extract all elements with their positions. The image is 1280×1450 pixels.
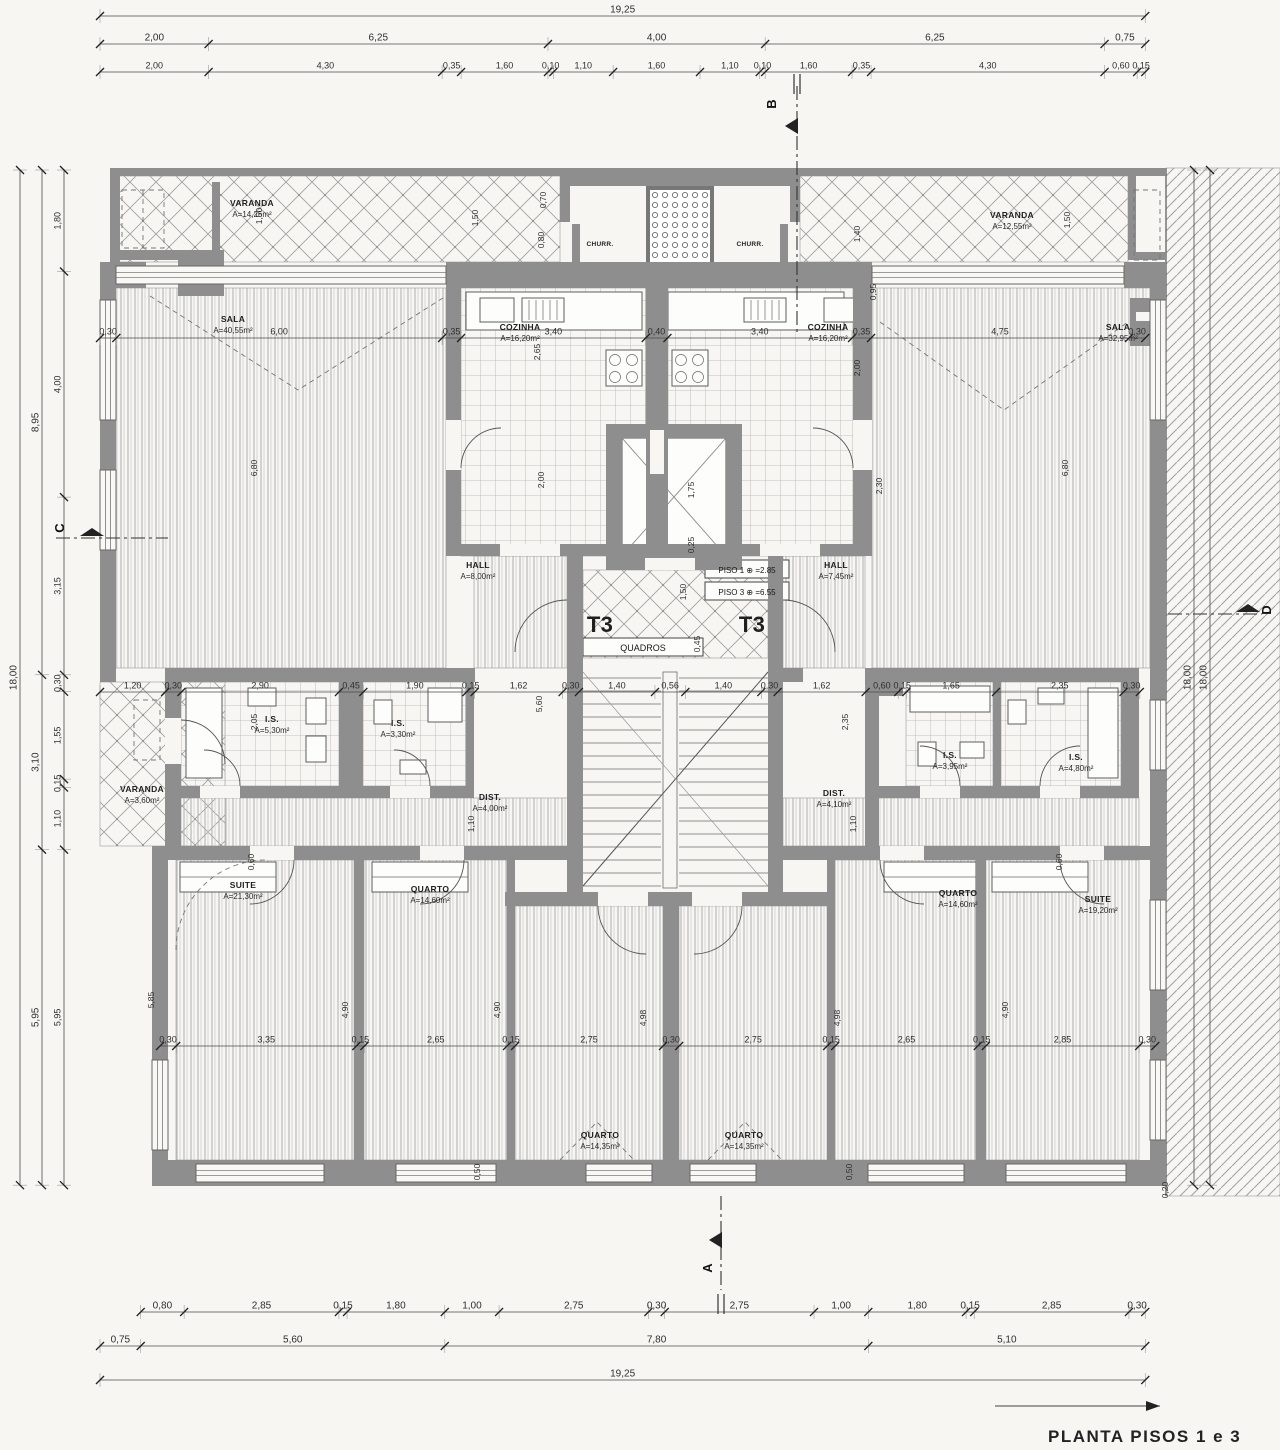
dim-label: 19,25 — [610, 1369, 635, 1380]
window — [1150, 300, 1166, 420]
dim-label: 0,30 — [53, 674, 63, 692]
fixture — [306, 698, 326, 724]
dim-label: 1,75 — [686, 481, 696, 498]
section-letter-c: C — [52, 523, 67, 533]
dim-label: 0,15 — [894, 681, 912, 691]
room-area-quarto_l1: A=14,60m² — [410, 896, 450, 905]
window — [872, 266, 1124, 284]
room-area-hall_l: A=8,00m² — [461, 572, 496, 581]
dim-label: 0,35 — [853, 327, 871, 337]
wall — [567, 556, 583, 668]
wall — [507, 860, 515, 1186]
dim-label: 2,85 — [252, 1301, 272, 1312]
dim-label: 2,00 — [146, 61, 164, 71]
wall — [339, 682, 363, 786]
dim-label: 2,75 — [730, 1301, 750, 1312]
window — [1150, 1060, 1166, 1140]
window — [586, 1164, 652, 1182]
door-opening — [650, 430, 664, 474]
door-opening — [420, 846, 464, 860]
dim-label: 0,40 — [648, 327, 666, 337]
dim-label: 2,35 — [1051, 681, 1069, 691]
dim-label: 1,65 — [942, 681, 960, 691]
dim-label: 0,60 — [873, 681, 891, 691]
window — [1150, 900, 1166, 990]
room-name-is_l1: I.S. — [265, 714, 279, 724]
dim-label: 4,90 — [1000, 1001, 1010, 1018]
fixture — [960, 742, 984, 758]
dim-label: 0,30 — [99, 327, 117, 337]
dim-chain-left_outer: 18,00 — [9, 166, 28, 1189]
room-area-varanda_ml: A=3,60m² — [125, 796, 160, 805]
dim-label: 0,30 — [562, 681, 580, 691]
floor-area — [176, 860, 354, 1160]
dim-label: 1,62 — [813, 681, 831, 691]
room-name-varanda_tr: VARANDA — [990, 210, 1034, 220]
room-area-sala_r: A=32,95m² — [1098, 334, 1138, 343]
room-area-cozinha_l: A=16,20m² — [500, 334, 540, 343]
wall — [768, 668, 783, 892]
door-opening — [692, 892, 742, 906]
dim-label: 5,85 — [146, 991, 156, 1008]
dim-label: 4,00 — [53, 376, 63, 394]
apartment-type-left: T3 — [587, 612, 613, 637]
dim-label: 2,75 — [564, 1301, 584, 1312]
window — [196, 1164, 324, 1182]
dim-label: 3,35 — [257, 1035, 275, 1045]
section-arrow-b-icon — [785, 118, 798, 134]
balcony-bench-dash — [1134, 190, 1160, 260]
dim-label: 0,30 — [647, 1301, 667, 1312]
window — [116, 266, 446, 284]
dim-label: 3,10 — [31, 752, 42, 772]
floor-plan-drawing: 19,252,006,254,006,250,752,004,300,351,6… — [0, 0, 1280, 1450]
dim-chain-bottom3: 19,25 — [96, 1369, 1149, 1388]
dim-label: 0,50 — [844, 1163, 854, 1180]
dim-label: 5,60 — [283, 1335, 303, 1346]
window — [1150, 700, 1166, 770]
dim-label: 3,15 — [53, 577, 63, 595]
dim-label: 18,00 — [1183, 665, 1194, 690]
wall — [446, 262, 872, 288]
dim-label: 4,75 — [991, 327, 1009, 337]
dim-label: 4,30 — [979, 61, 997, 71]
room-name-dist_l: DIST. — [479, 792, 501, 802]
dim-label: 0,15 — [822, 1035, 840, 1045]
dim-label: 1,80 — [53, 212, 63, 230]
floor-area — [181, 798, 568, 846]
dim-label: 7,80 — [647, 1335, 667, 1346]
wall — [1128, 176, 1136, 260]
fixture — [428, 688, 462, 722]
window — [1006, 1164, 1126, 1182]
door-opening — [645, 558, 695, 570]
window — [152, 1060, 168, 1150]
room-name-sala_r: SALA — [1106, 322, 1130, 332]
room-name-is_l2: I.S. — [391, 718, 405, 728]
room-area-quarto_c2: A=14,35m² — [724, 1142, 764, 1151]
dim-label: 1,90 — [406, 681, 424, 691]
fixture — [480, 298, 514, 322]
dim-label: 1,60 — [648, 61, 666, 71]
wall — [110, 168, 120, 262]
dim-label: 0,15 — [352, 1035, 370, 1045]
dim-label: 1,20 — [124, 681, 142, 691]
door-opening — [390, 786, 430, 798]
title-leader-arrow-icon — [1146, 1401, 1160, 1411]
room-name-cozinha_r: COZINHA — [808, 322, 849, 332]
quadros-label: QUADROS — [620, 643, 666, 653]
dim-label: 18,00 — [9, 665, 20, 690]
door-opening — [200, 786, 240, 798]
dim-label: 2,85 — [1042, 1301, 1062, 1312]
floor-area — [364, 860, 507, 1160]
door-opening — [446, 420, 461, 470]
drawing-title: PLANTA PISOS 1 e 3 — [1048, 1427, 1241, 1446]
dim-label: 2,65 — [532, 343, 542, 360]
room-area-varanda_tr: A=12,55m² — [992, 222, 1032, 231]
room-name-hall_r: HALL — [824, 560, 848, 570]
dim-chain-top3: 2,004,300,351,600,101,101,601,100,101,60… — [96, 61, 1150, 80]
dim-label: 0,35 — [443, 327, 461, 337]
door-opening — [250, 846, 294, 860]
dim-label: 0,60 — [1054, 853, 1064, 870]
room-name-quarto_c1: QUARTO — [581, 1130, 620, 1140]
floor-area — [679, 906, 827, 1160]
dim-label: 3,40 — [545, 327, 563, 337]
wall — [726, 424, 742, 570]
dim-label: 0,10 — [754, 61, 772, 71]
door-opening — [1040, 786, 1080, 798]
fixture — [400, 760, 426, 774]
wall — [466, 682, 474, 786]
dim-label: 18,00 — [1199, 665, 1210, 690]
dim-chain-top1: 19,25 — [96, 5, 1149, 24]
dim-label: 19,25 — [610, 5, 635, 16]
dim-label: 1,40 — [852, 225, 862, 242]
dim-label: 4,90 — [492, 1001, 502, 1018]
door-opening — [880, 846, 924, 860]
dim-label: 0,60 — [1112, 61, 1130, 71]
staircase — [583, 672, 768, 888]
room-area-hall_r: A=7,45m² — [819, 572, 854, 581]
dim-label: 2,00 — [536, 471, 546, 488]
piso3-label: PISO 3 ⊕ =6.55 — [718, 588, 776, 597]
door-opening — [500, 544, 560, 556]
dim-label: 0,45 — [692, 635, 702, 652]
door-opening — [853, 420, 872, 470]
wall — [790, 176, 800, 222]
wall — [152, 846, 568, 860]
dim-chain-left_mid: 8,953,105,95 — [31, 166, 50, 1189]
apartment-type-right: T3 — [739, 612, 765, 637]
wall — [165, 668, 475, 682]
dim-label: 5,95 — [53, 1009, 63, 1027]
dim-label: 0,35 — [443, 61, 461, 71]
dim-label: 0,75 — [1115, 33, 1135, 44]
dim-label: 1,10 — [53, 810, 63, 828]
room-name-sala_l: SALA — [221, 314, 245, 324]
room-name-dist_r: DIST. — [823, 788, 845, 798]
window — [868, 1164, 964, 1182]
window — [690, 1164, 756, 1182]
fixture — [306, 736, 326, 762]
dim-label: 0,30 — [159, 1035, 177, 1045]
dim-label: 2,75 — [580, 1035, 598, 1045]
dim-label: 6,80 — [1060, 459, 1070, 476]
dim-label: 0,15 — [502, 1035, 520, 1045]
wall — [110, 168, 1166, 176]
dim-label: 3,40 — [751, 327, 769, 337]
dim-label: 8,95 — [31, 412, 42, 432]
room-name-varanda_ml: VARANDA — [120, 784, 164, 794]
dim-label: 1,10 — [575, 61, 593, 71]
dim-label: 4,90 — [340, 1001, 350, 1018]
dim-label: 0,75 — [111, 1335, 131, 1346]
dim-label: 0,15 — [462, 681, 480, 691]
door-opening — [920, 786, 960, 798]
fixture — [186, 688, 222, 778]
room-name-quarto_l1: QUARTO — [411, 884, 450, 894]
dim-label: 0,60 — [246, 853, 256, 870]
room-area-suite_l: A=21,30m² — [223, 892, 263, 901]
window — [100, 300, 116, 420]
room-name-quarto_c2: QUARTO — [725, 1130, 764, 1140]
dim-label: 0,30 — [761, 681, 779, 691]
room-area-is_r1: A=3,95m² — [933, 762, 968, 771]
room-area-cozinha_r: A=16,20m² — [808, 334, 848, 343]
wall — [354, 860, 364, 1160]
room-area-is_l1: A=5,30m² — [255, 726, 290, 735]
dim-label: 1,50 — [470, 209, 480, 226]
dim-label: 6,25 — [925, 33, 945, 44]
dim-label: 1,10 — [466, 815, 476, 832]
floor-area — [112, 176, 560, 262]
dim-chain-left_inner: 1,804,003,150,301,550,151,105,95 — [53, 166, 72, 1189]
room-name-is_r1: I.S. — [943, 750, 957, 760]
dim-chain-top2: 2,006,254,006,250,75 — [96, 33, 1149, 52]
dim-label: 6,80 — [249, 459, 259, 476]
floor-area — [800, 176, 1128, 262]
dim-label: 4,98 — [638, 1009, 648, 1026]
wall — [606, 424, 622, 570]
dim-label: 0,15 — [960, 1301, 980, 1312]
fixture — [374, 700, 392, 724]
dim-label: 1,40 — [715, 681, 733, 691]
fixture — [248, 688, 276, 706]
dim-label: 5,10 — [997, 1335, 1017, 1346]
floor-area — [116, 288, 446, 668]
dim-label: 0,30 — [1123, 681, 1141, 691]
dim-label: 2,00 — [145, 33, 165, 44]
dim-label: 1,60 — [496, 61, 514, 71]
dim-label: 0,20 — [1160, 1181, 1170, 1198]
dim-label: 2,90 — [251, 681, 269, 691]
room-name-varanda_tl: VARANDA — [230, 198, 274, 208]
section-letter-a: A — [700, 1263, 715, 1273]
room-name-suite_l: SUITE — [230, 880, 257, 890]
dim-label: 2,30 — [874, 477, 884, 494]
dim-label: 4,30 — [317, 61, 335, 71]
room-name-hall_l: HALL — [466, 560, 490, 570]
dim-label: 2,75 — [744, 1035, 762, 1045]
dim-label: 0,80 — [153, 1301, 173, 1312]
dim-label: 0,50 — [472, 1163, 482, 1180]
dim-label: 1,55 — [53, 727, 63, 745]
room-area-is_l2: A=3,30m² — [381, 730, 416, 739]
dim-label: 0,15 — [973, 1035, 991, 1045]
wall — [993, 682, 1001, 786]
room-name-cozinha_l: COZINHA — [500, 322, 541, 332]
dim-label: 0,30 — [165, 681, 183, 691]
section-arrow-a-icon — [709, 1232, 722, 1248]
dim-label: 2,65 — [898, 1035, 916, 1045]
door-opening — [1060, 846, 1104, 860]
door-opening — [598, 892, 648, 906]
wall — [783, 668, 803, 682]
wall — [212, 182, 220, 256]
room-area-is_r2: A=4,80m² — [1059, 764, 1094, 773]
dim-label: 1,00 — [831, 1301, 851, 1312]
dim-label: 1,62 — [510, 681, 528, 691]
room-area-suite_r: A=19,20m² — [1078, 906, 1118, 915]
room-name-churr_r: CHURR. — [736, 241, 763, 248]
dim-label: 0,70 — [538, 191, 548, 208]
piso1-label: PISO 1 ⊕ =2.85 — [718, 566, 776, 575]
wall — [606, 424, 742, 438]
dim-label: 2,85 — [1054, 1035, 1072, 1045]
dim-chain-bottom1: 0,802,850,151,801,002,750,302,751,001,80… — [137, 1301, 1150, 1320]
dim-label: 4,00 — [647, 33, 667, 44]
dim-label: 0,15 — [1132, 61, 1150, 71]
room-name-quarto_r1: QUARTO — [939, 888, 978, 898]
dim-label: 0,80 — [536, 231, 546, 248]
wall — [560, 176, 800, 186]
drawing-sheet: 19,252,006,254,006,250,752,004,300,351,6… — [0, 0, 1280, 1450]
dim-label: 0,30 — [1127, 1301, 1147, 1312]
fixture — [1008, 700, 1026, 724]
dim-label: 0,15 — [333, 1301, 353, 1312]
dim-label: 5,95 — [31, 1007, 42, 1027]
dim-label: 0,45 — [342, 681, 360, 691]
section-letter-d: D — [1259, 605, 1274, 614]
dim-label: 0,35 — [853, 61, 871, 71]
room-area-quarto_r1: A=14,60m² — [938, 900, 978, 909]
dim-label: 1,50 — [1062, 211, 1072, 228]
dim-label: 1,00 — [462, 1301, 482, 1312]
room-area-quarto_c1: A=14,35m² — [580, 1142, 620, 1151]
dim-label: 0,25 — [686, 536, 696, 553]
room-area-varanda_tl: A=14,25m² — [232, 210, 272, 219]
room-name-is_r2: I.S. — [1069, 752, 1083, 762]
dim-label: 6,25 — [369, 33, 389, 44]
wall — [879, 786, 1139, 798]
dim-label: 1,50 — [678, 583, 688, 600]
door-opening — [165, 718, 181, 764]
dim-label: 0,56 — [661, 681, 679, 691]
dim-label: 1,40 — [608, 681, 626, 691]
dim-label: 0,95 — [868, 283, 878, 300]
fixture — [824, 298, 858, 322]
wall — [865, 668, 879, 846]
room-name-suite_r: SUITE — [1085, 894, 1112, 904]
room-area-dist_l: A=4,00m² — [473, 804, 508, 813]
dim-label: 2,00 — [852, 359, 862, 376]
dim-label: 6,00 — [270, 327, 288, 337]
wall — [560, 176, 570, 222]
floor-area — [872, 288, 1150, 668]
dim-label: 0,30 — [662, 1035, 680, 1045]
dim-label: 0,10 — [542, 61, 560, 71]
section-letter-b: B — [764, 99, 779, 108]
door-opening — [760, 544, 820, 556]
floor-area — [515, 906, 663, 1160]
wall — [567, 668, 583, 892]
dim-label: 1,80 — [386, 1301, 406, 1312]
dim-label: 1,10 — [721, 61, 739, 71]
wall — [1124, 262, 1166, 288]
dim-label: 4,98 — [832, 1009, 842, 1026]
dim-label: 1,10 — [848, 815, 858, 832]
dim-label: 2,65 — [427, 1035, 445, 1045]
dim-chain-bottom2: 0,755,607,805,10 — [96, 1335, 1149, 1354]
dim-label: 2,35 — [840, 713, 850, 730]
room-area-sala_l: A=40,55m² — [213, 326, 253, 335]
dim-label: 0,30 — [1138, 1035, 1156, 1045]
dim-label: 1,60 — [800, 61, 818, 71]
dim-label: 1,80 — [907, 1301, 927, 1312]
room-name-churr_l: CHURR. — [586, 241, 613, 248]
dim-label: 5,60 — [534, 695, 544, 712]
room-area-dist_r: A=4,10m² — [817, 800, 852, 809]
dim-label: 0,15 — [53, 775, 63, 793]
